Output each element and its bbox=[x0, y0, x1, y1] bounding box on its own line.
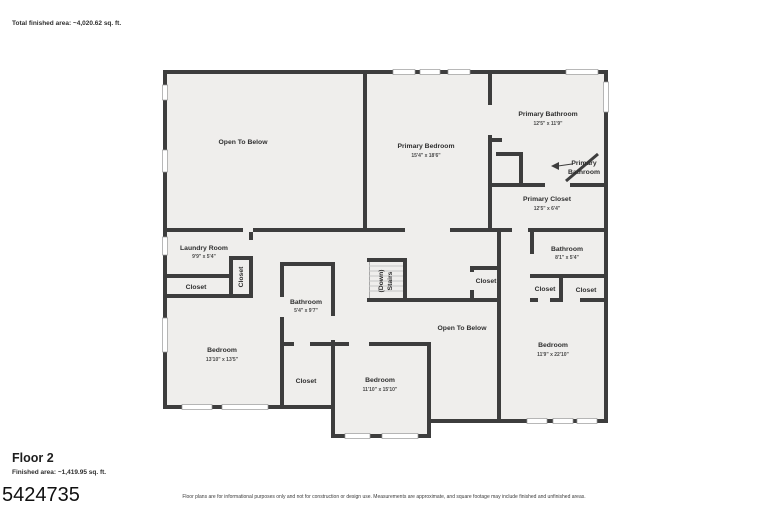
room-dims-primary-bedroom: 15'4" x 18'6" bbox=[411, 153, 441, 159]
room-label-primary-bathroom-callout-1: Primary bbox=[571, 160, 597, 167]
room-label-open-to-below-center: Open To Below bbox=[438, 325, 488, 332]
room-label-laundry: Laundry Room bbox=[180, 245, 228, 252]
room-label-bedroom-lower: Bedroom bbox=[365, 377, 395, 384]
floor-plan: Open To Below Primary Bedroom 15'4" x 18… bbox=[0, 0, 768, 512]
room-dims-laundry: 9'9" x 5'4" bbox=[192, 254, 216, 260]
room-dims-bedroom-lower: 11'10" x 15'10" bbox=[363, 387, 398, 393]
room-dims-bathroom-right: 8'1" x 5'4" bbox=[555, 255, 579, 261]
room-dims-bathroom-center: 5'4" x 9'7" bbox=[294, 308, 318, 314]
room-label-hall-closet: Closet bbox=[476, 278, 498, 285]
floor-finished-area: Finished area: ~1,419.95 sq. ft. bbox=[12, 469, 106, 476]
room-label-bathroom-center: Bathroom bbox=[290, 299, 322, 306]
room-label-bedroom-left: Bedroom bbox=[207, 347, 237, 354]
room-label-laundry-closet: Closet bbox=[186, 284, 208, 291]
room-label-primary-closet: Primary Closet bbox=[523, 196, 572, 203]
room-label-stairs-2: (Down) bbox=[378, 269, 385, 292]
room-label-closet-right-b: Closet bbox=[576, 287, 598, 294]
room-dims-primary-closet: 12'5" x 6'4" bbox=[534, 206, 561, 212]
room-label-primary-bedroom: Primary Bedroom bbox=[397, 143, 454, 150]
room-label-closet-lower: Closet bbox=[296, 378, 318, 385]
room-label-primary-bathroom: Primary Bathroom bbox=[518, 111, 577, 118]
room-label-bedroom-right: Bedroom bbox=[538, 342, 568, 349]
room-label-primary-bathroom-callout-2: Bathroom bbox=[568, 169, 600, 176]
room-dims-bedroom-left: 13'10" x 13'5" bbox=[206, 357, 239, 363]
floorplan-page: Total finished area: ~4,020.62 sq. ft. bbox=[0, 0, 768, 512]
disclaimer-text: Floor plans are for informational purpos… bbox=[0, 494, 768, 500]
room-dims-bedroom-right: 11'9" x 22'10" bbox=[537, 352, 569, 358]
room-label-stairs-1: Stairs bbox=[387, 271, 394, 290]
room-label-open-to-below-upper: Open To Below bbox=[219, 139, 269, 146]
floor-title: Floor 2 bbox=[12, 451, 54, 465]
room-label-closet-right-a: Closet bbox=[535, 286, 557, 293]
room-label-bathroom-right: Bathroom bbox=[551, 246, 583, 253]
room-label-laundry-closet-vertical: Closet bbox=[238, 266, 245, 288]
room-dims-primary-bathroom: 12'5" x 11'9" bbox=[533, 121, 563, 127]
